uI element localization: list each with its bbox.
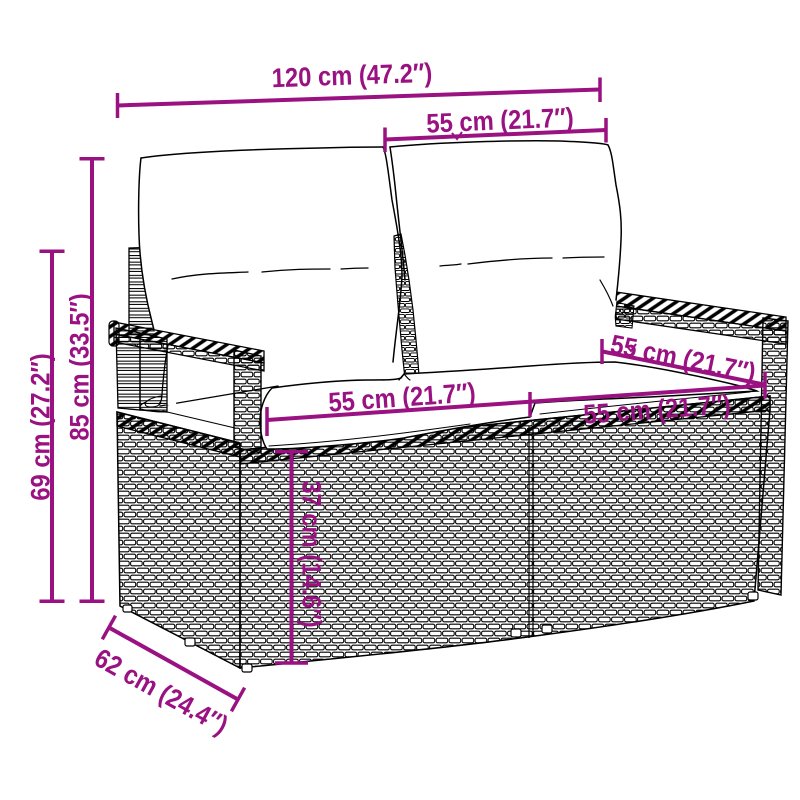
svg-text:37 cm (14.6″): 37 cm (14.6″) xyxy=(296,480,326,627)
svg-text:120 cm (47.2″): 120 cm (47.2″) xyxy=(271,58,433,93)
svg-text:69 cm (27.2″): 69 cm (27.2″) xyxy=(26,353,56,500)
svg-text:85 cm (33.5″): 85 cm (33.5″) xyxy=(65,293,95,440)
